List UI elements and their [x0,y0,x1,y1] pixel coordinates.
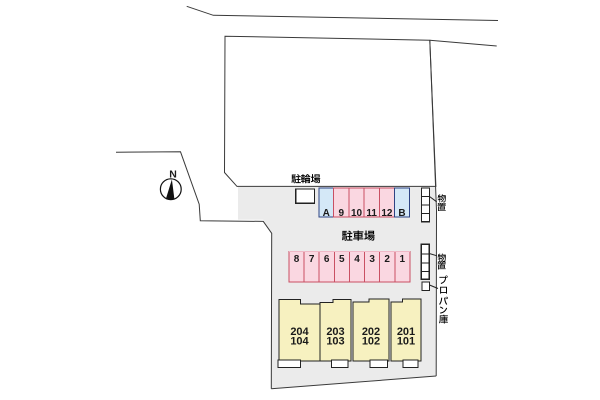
svg-text:N: N [169,169,177,181]
svg-text:A: A [323,208,330,219]
svg-text:12: 12 [381,208,393,219]
svg-text:104: 104 [290,335,309,347]
svg-text:6: 6 [324,254,330,265]
svg-text:103: 103 [326,335,344,347]
svg-text:5: 5 [339,254,345,265]
svg-text:B: B [398,208,405,219]
svg-text:9: 9 [339,208,345,219]
svg-text:11: 11 [366,208,377,219]
svg-text:2: 2 [384,254,390,265]
svg-text:102: 102 [362,335,380,347]
svg-text:7: 7 [309,254,315,265]
svg-text:101: 101 [397,335,415,347]
svg-text:1: 1 [400,254,406,265]
svg-text:10: 10 [351,208,363,219]
svg-text:4: 4 [354,254,360,265]
svg-text:8: 8 [294,254,300,265]
svg-text:3: 3 [369,254,375,265]
